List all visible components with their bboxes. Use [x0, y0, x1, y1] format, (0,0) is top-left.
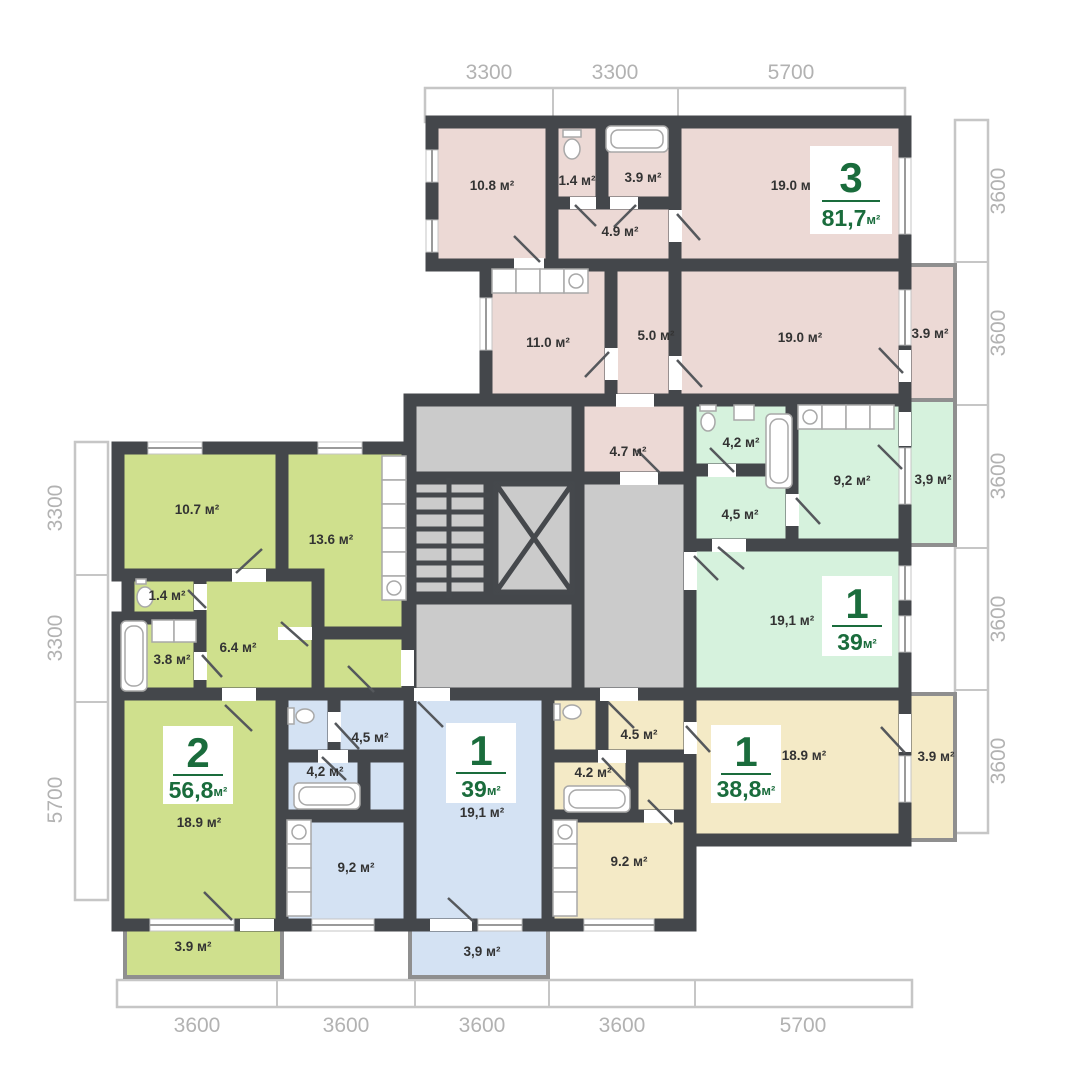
dim-label: 3600 [599, 1014, 646, 1037]
bathtub-icon [121, 621, 147, 691]
room-area-label: 1.4 м² [559, 173, 597, 188]
bathtub-icon [766, 414, 792, 488]
dim-label: 3600 [174, 1014, 221, 1037]
room-area-label: 19,1 м² [770, 613, 815, 628]
room-area-label: 4.7 м² [610, 444, 648, 459]
kitchen-counter-icon [287, 820, 311, 916]
ruler-left: 3300 3300 5700 [44, 442, 108, 900]
room-area-label: 19.0 м² [771, 178, 816, 193]
toilet-icon [288, 708, 314, 724]
room-area-label: 13.6 м² [309, 532, 354, 547]
floor-plan-canvas: 3300 3300 5700 3600 3600 3600 3600 3600 … [0, 0, 1080, 1080]
room-area-label: 18.9 м² [782, 748, 827, 763]
bathtub-icon [606, 126, 668, 152]
room-area-label: 18.9 м² [177, 815, 222, 830]
room-area-label: 4,5 м² [722, 507, 760, 522]
room-area-label: 9.2 м² [611, 854, 649, 869]
room-area-label: 4,2 м² [307, 764, 345, 779]
room-area-label: 19.0 м² [778, 330, 823, 345]
room-hall [334, 694, 410, 756]
kitchen-counter-icon [492, 269, 588, 293]
balcony [905, 694, 955, 840]
dim-label: 3600 [323, 1014, 370, 1037]
badge-rooms-count: 1 [734, 728, 757, 775]
dim-label: 5700 [768, 61, 815, 84]
dim-label: 5700 [44, 777, 67, 824]
lobby [410, 400, 578, 478]
ruler-right: 3600 3600 3600 3600 3600 [955, 120, 1010, 833]
room-area-label: 4.9 м² [602, 224, 640, 239]
ruler-bottom: 3600 3600 3600 3600 5700 [117, 980, 912, 1037]
dim-label: 3600 [987, 596, 1010, 643]
floor-plan: 3300 3300 5700 3600 3600 3600 3600 3600 … [0, 0, 1080, 1080]
room-area-label: 3.9 м² [625, 170, 663, 185]
room-area-label: 4.2 м² [575, 765, 613, 780]
room-area-label: 4,5 м² [352, 730, 390, 745]
room-area-label: 11.0 м² [526, 335, 570, 350]
badge-apartment-2-lime: 2 56,8м² [163, 726, 233, 804]
badge-apartment-1-mint: 1 39м² [822, 576, 892, 656]
badge-apartment-3-pink: 3 81,7м² [810, 146, 892, 234]
room-area-label: 9,2 м² [338, 860, 376, 875]
room-area-label: 6.4 м² [220, 640, 258, 655]
room-hall2 [318, 633, 408, 694]
room-area-label: 1.4 м² [149, 588, 187, 603]
room-area-label: 3,9 м² [464, 944, 502, 959]
bathtub-icon [564, 786, 630, 812]
room-hall [602, 694, 690, 756]
corridor-common [578, 478, 690, 694]
lower-lobby [410, 598, 578, 694]
toilet-icon [554, 704, 581, 720]
dim-label: 3600 [987, 168, 1010, 215]
toilet-icon [563, 130, 581, 159]
dim-label: 3300 [466, 61, 513, 84]
room-wc [282, 694, 334, 756]
kitchen-counter-icon [382, 456, 406, 600]
kitchen-counter-icon [553, 820, 577, 916]
badge-rooms-count: 2 [186, 729, 209, 776]
dim-label: 3600 [987, 453, 1010, 500]
room-area-label: 4,2 м² [723, 435, 761, 450]
dim-label: 3600 [987, 738, 1010, 785]
badge-rooms-count: 3 [839, 154, 862, 201]
dim-label: 3300 [44, 485, 67, 532]
room-corridor [578, 400, 690, 478]
room-area-label: 5.0 м² [638, 328, 676, 343]
dim-label: 3300 [592, 61, 639, 84]
badge-apartment-1-yellow: 1 38,8м² [711, 725, 781, 803]
kitchen-counter-icon [798, 405, 894, 429]
room-area-label: 10.7 м² [175, 502, 220, 517]
room-area-label: 10.8 м² [470, 178, 515, 193]
room-area-label: 3.8 м² [154, 652, 192, 667]
dim-label: 3600 [987, 310, 1010, 357]
room-area-label: 4.5 м² [621, 727, 659, 742]
room-area-label: 3.9 м² [912, 326, 950, 341]
room-area-label: 19,1 м² [460, 805, 505, 820]
bathtub-icon [294, 783, 360, 809]
badge-rooms-count: 1 [845, 580, 868, 627]
room-area-label: 3,9 м² [915, 472, 953, 487]
badge-apartment-1-blue: 1 39м² [446, 723, 516, 803]
room-pass [364, 756, 410, 816]
room-area-label: 3.9 м² [918, 749, 956, 764]
dim-label: 3600 [459, 1014, 506, 1037]
room-pass [632, 756, 690, 816]
room-area-label: 3.9 м² [175, 939, 213, 954]
dim-label: 5700 [780, 1014, 827, 1037]
badge-rooms-count: 1 [469, 727, 492, 774]
dim-label: 3300 [44, 615, 67, 662]
room-bedroom [432, 122, 552, 265]
room-area-label: 9,2 м² [834, 473, 872, 488]
ruler-top: 3300 3300 5700 [425, 61, 905, 122]
